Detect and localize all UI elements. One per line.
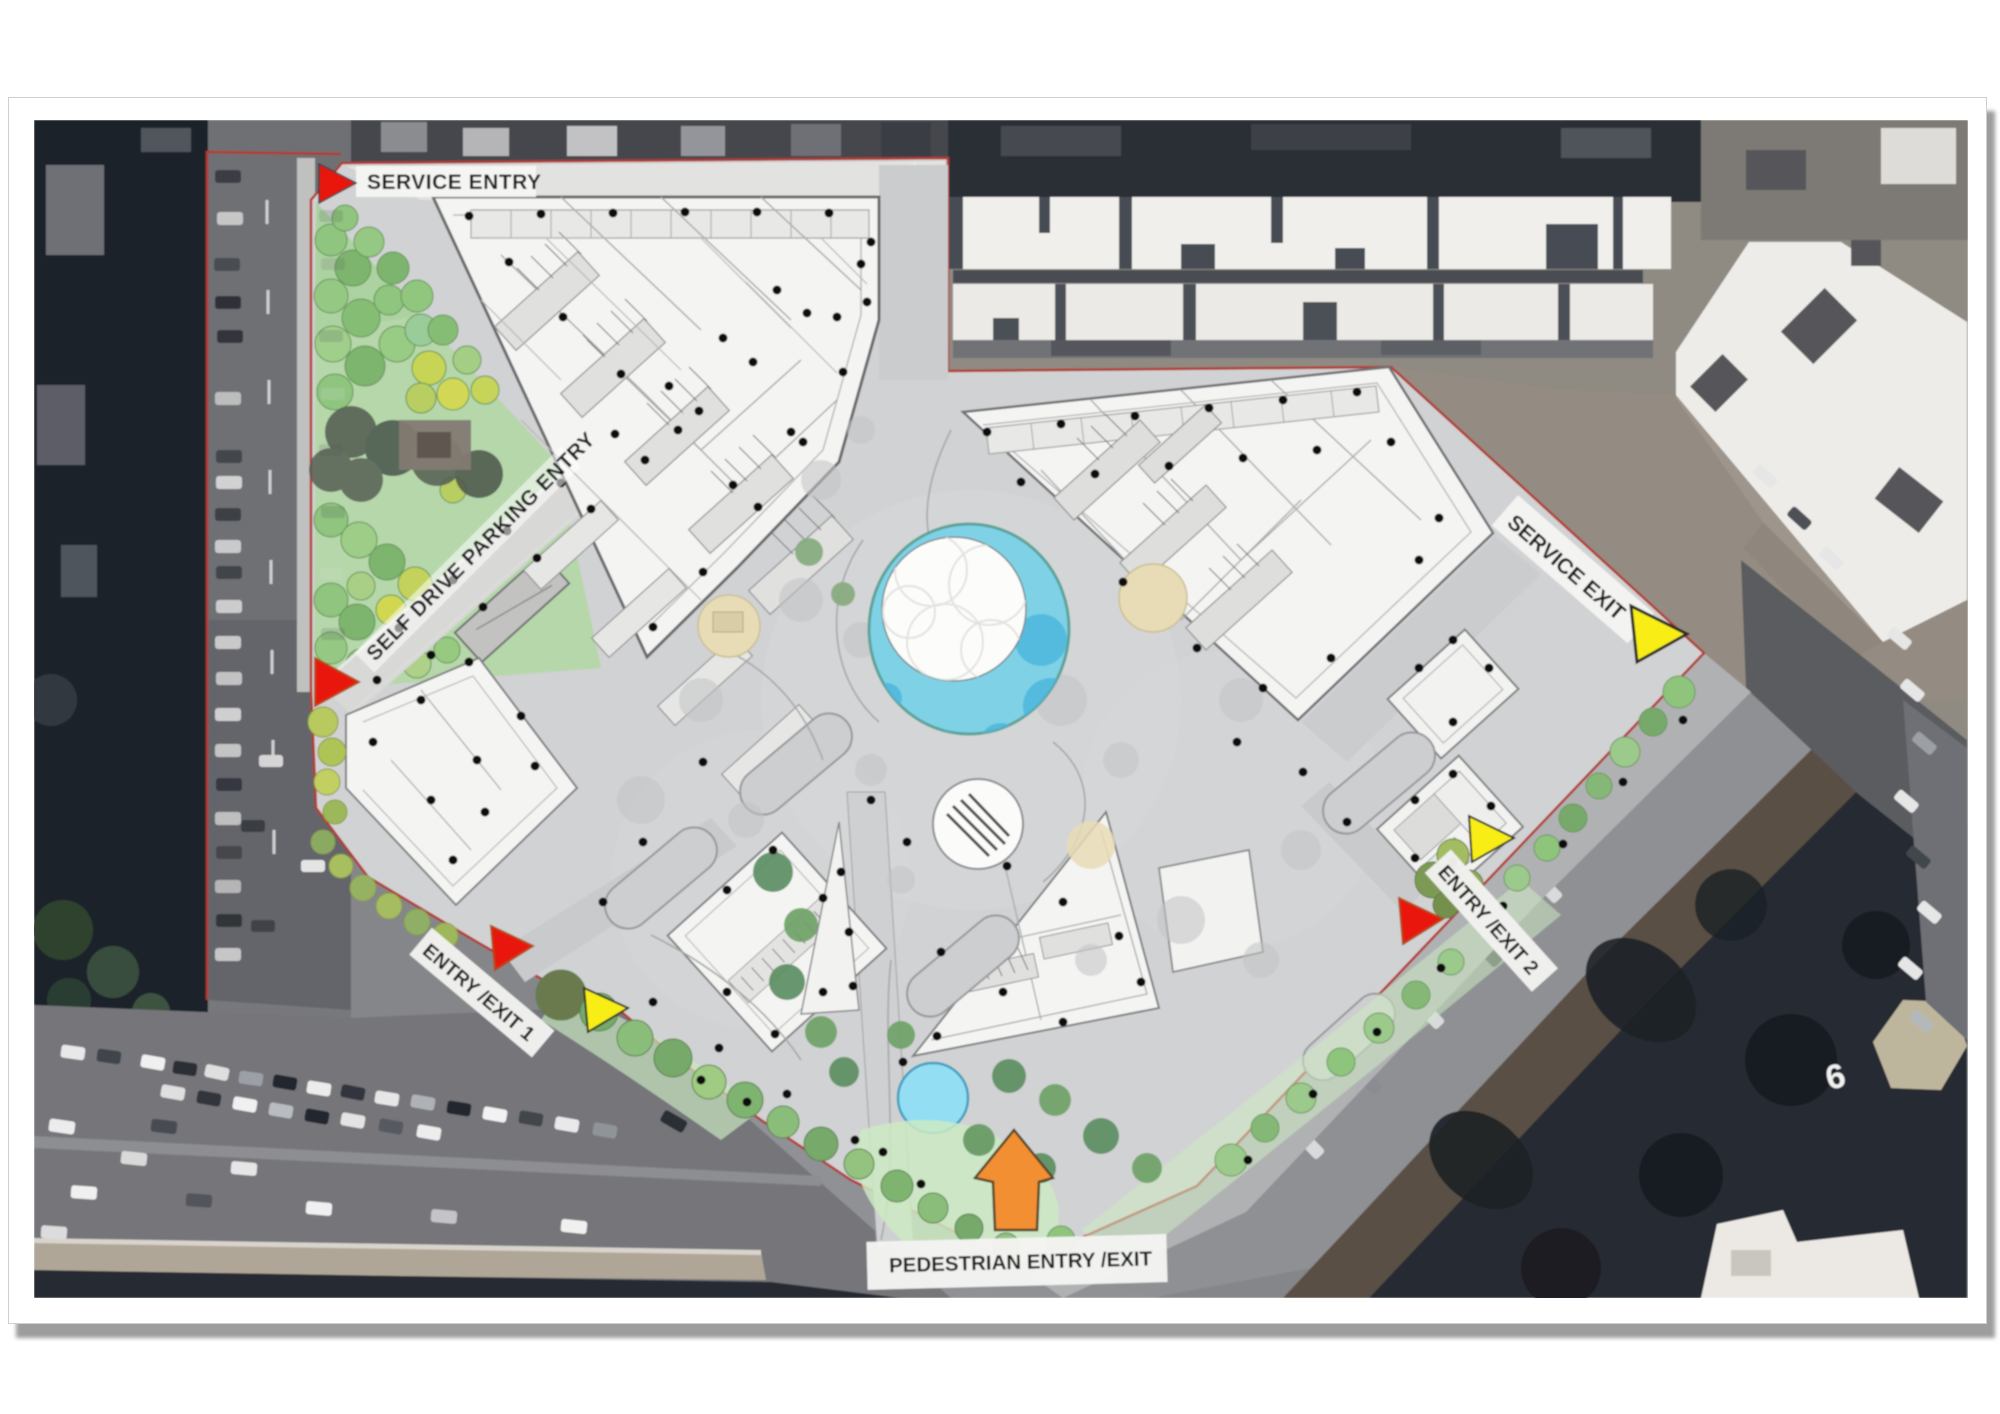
svg-text:SERVICE ENTRY: SERVICE ENTRY [367,171,542,194]
